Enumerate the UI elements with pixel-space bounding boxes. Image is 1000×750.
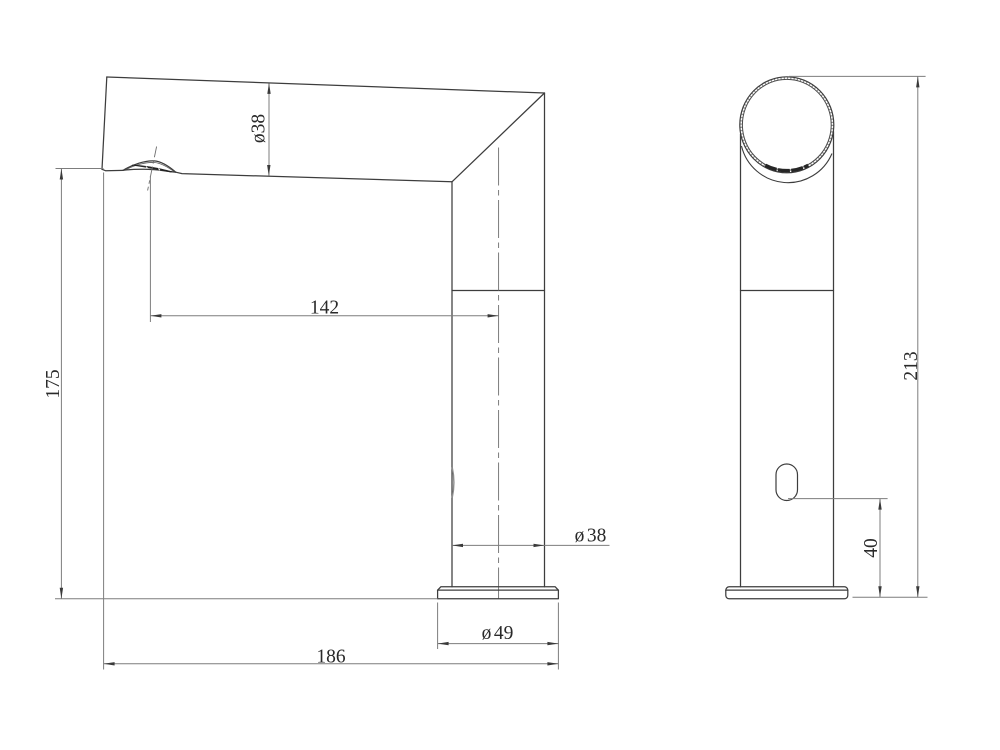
svg-text:142: 142 xyxy=(310,298,339,319)
svg-text:ø49: ø49 xyxy=(482,623,514,644)
svg-text:186: 186 xyxy=(316,646,346,667)
svg-text:ø38: ø38 xyxy=(575,525,607,546)
svg-text:ø38: ø38 xyxy=(249,114,270,143)
svg-text:175: 175 xyxy=(43,369,64,398)
svg-text:213: 213 xyxy=(901,351,922,380)
svg-text:40: 40 xyxy=(861,538,882,558)
